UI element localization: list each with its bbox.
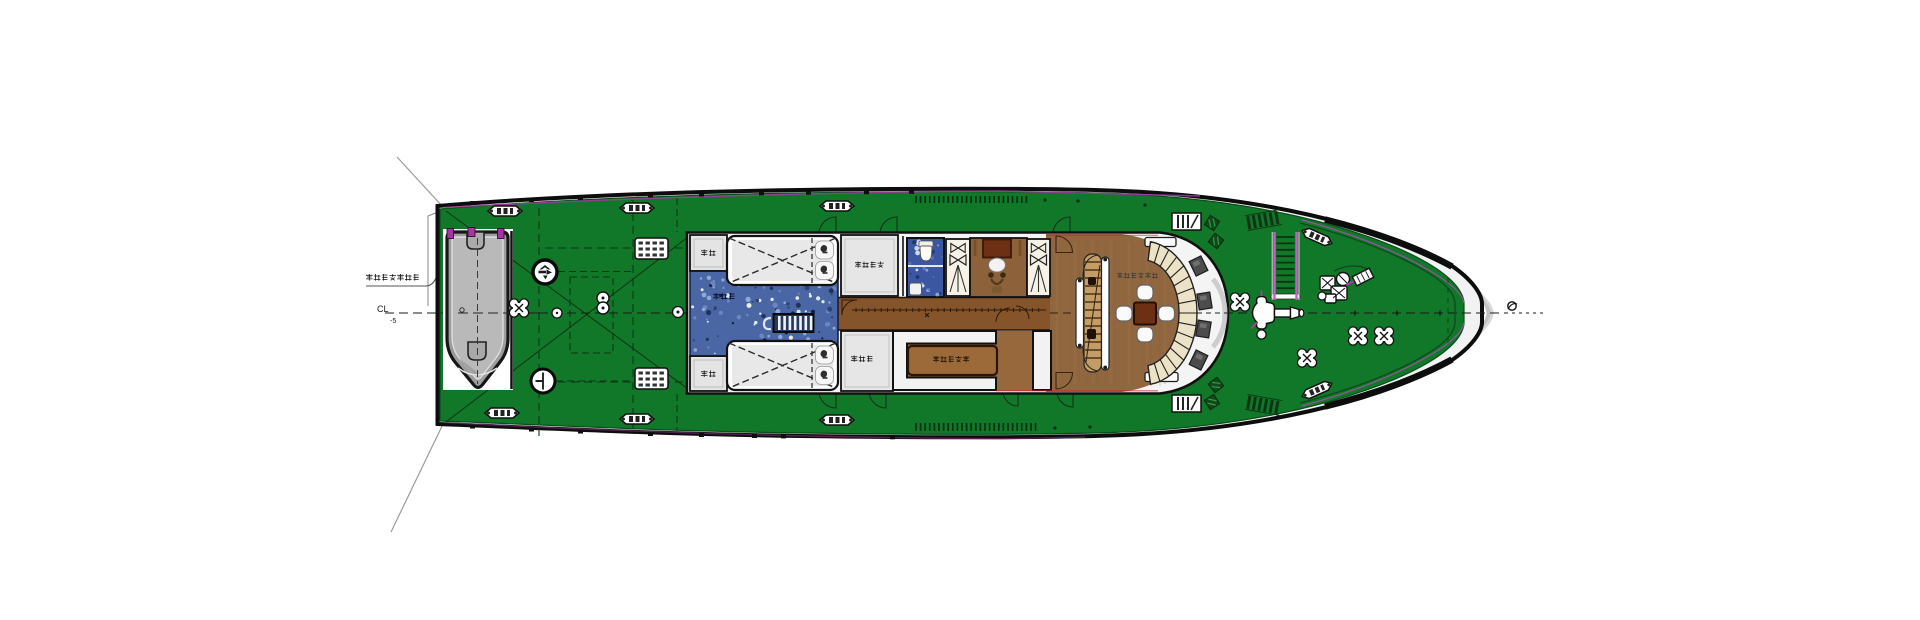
svg-text:-5: -5 — [390, 318, 396, 325]
